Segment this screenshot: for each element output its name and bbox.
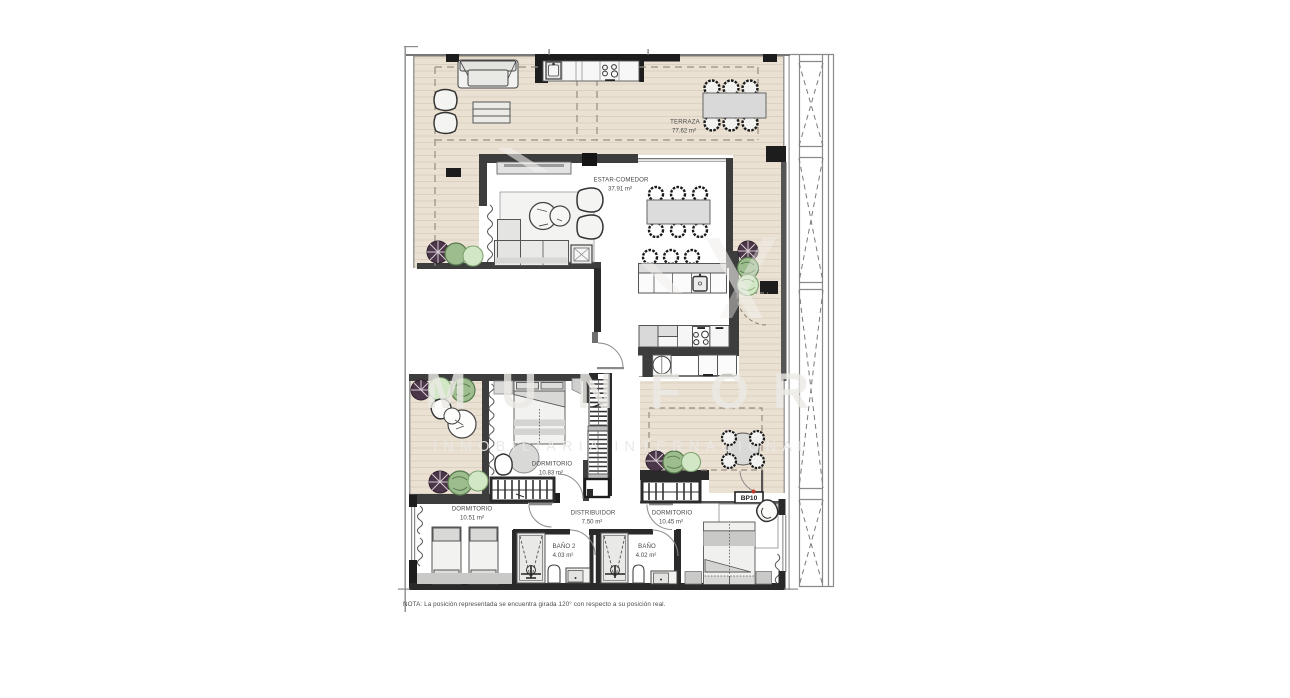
svg-text:BP10: BP10	[741, 495, 758, 502]
svg-text:DORMITORIO: DORMITORIO	[652, 510, 693, 517]
svg-text:7.50 m²: 7.50 m²	[582, 519, 603, 526]
svg-text:INMOBILIARIA INTERNACIONAL: INMOBILIARIA INTERNACIONAL	[433, 439, 813, 455]
svg-text:DORMITORIO: DORMITORIO	[452, 506, 493, 513]
svg-text:77.62 m²: 77.62 m²	[672, 128, 696, 135]
svg-text:4.02 m²: 4.02 m²	[636, 552, 657, 559]
svg-text:BAÑO: BAÑO	[638, 543, 656, 550]
svg-text:NOTA: La posición representada: NOTA: La posición representada se encuen…	[403, 600, 666, 608]
svg-text:10.45 m²: 10.45 m²	[659, 519, 683, 526]
svg-text:BAÑO 2: BAÑO 2	[553, 543, 576, 550]
svg-text:10.83 m²: 10.83 m²	[539, 470, 563, 477]
svg-text:ESTAR-COMEDOR: ESTAR-COMEDOR	[593, 177, 649, 184]
svg-text:4.03 m²: 4.03 m²	[553, 552, 574, 559]
svg-text:TERRAZA: TERRAZA	[670, 119, 701, 126]
svg-text:DORMITORIO: DORMITORIO	[532, 461, 573, 468]
svg-text:DISTRIBUIDOR: DISTRIBUIDOR	[571, 510, 616, 517]
svg-text:10.51 m²: 10.51 m²	[460, 515, 484, 522]
svg-text:37.91 m²: 37.91 m²	[608, 186, 632, 193]
